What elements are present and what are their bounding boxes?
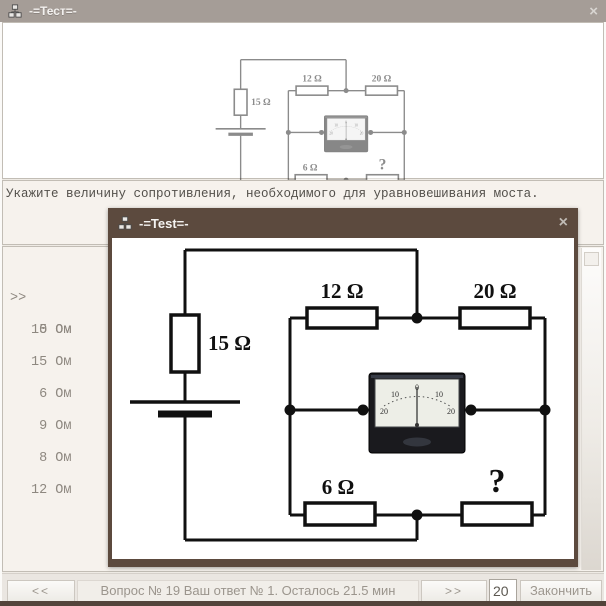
next-question-button[interactable]: >> [421,580,487,602]
app-icon [8,4,22,18]
main-close-icon[interactable]: × [589,4,598,19]
window-bottom-edge [0,601,606,606]
main-window-title: -=Тест=- [29,4,77,18]
app-icon [118,216,132,230]
popup-titlebar[interactable]: -=Test=- × [112,208,574,238]
popup-close-icon[interactable]: × [559,215,568,231]
answer-label: 12 Ом [31,475,72,507]
scroll-up-button[interactable] [584,252,599,266]
circuit-diagram [122,238,562,558]
main-titlebar[interactable]: -=Тест=- × [0,0,606,22]
status-text: Вопрос № 19 Ваш ответ № 1. Осталось 21.5… [77,580,419,602]
question-image-panel [2,22,604,179]
answers-scrollbar[interactable] [581,248,601,570]
page-number-input[interactable] [489,579,517,603]
bottom-bar: << Вопрос № 19 Ваш ответ № 1. Осталось 2… [2,573,604,601]
popup-window-title: -=Test=- [139,216,189,231]
finish-button[interactable]: Закончить [520,580,602,602]
prev-question-button[interactable]: << [7,580,75,602]
question-text: Укажите величину сопротивления, необходи… [6,187,539,201]
popup-window: -=Test=- × [108,208,578,567]
popup-content [112,238,574,559]
circuit-thumbnail [212,54,412,200]
